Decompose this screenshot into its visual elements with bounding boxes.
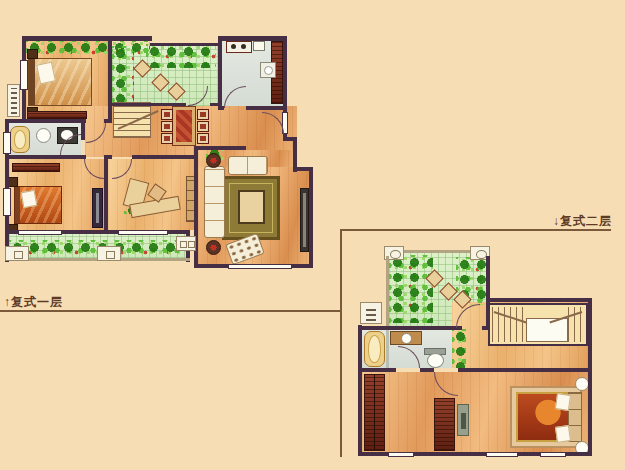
- post-detail: [188, 241, 195, 248]
- table-runner: [176, 110, 192, 142]
- wall: [108, 36, 112, 123]
- wall: [5, 155, 86, 159]
- ac-vent-icon: [11, 88, 17, 114]
- side-table: [206, 153, 221, 168]
- dining-chair: [197, 109, 209, 120]
- wall: [81, 123, 85, 140]
- wall: [458, 368, 588, 372]
- plants-terrace-left: [389, 255, 433, 323]
- wall: [246, 106, 287, 110]
- bathtub: [364, 331, 385, 367]
- terrace-rail: [386, 256, 389, 328]
- post-detail: [106, 251, 115, 259]
- burner: [241, 44, 246, 49]
- headboard: [29, 59, 35, 105]
- pillow: [36, 62, 56, 85]
- plan-first-floor-label: ↑复式一层: [4, 294, 63, 311]
- wall: [486, 256, 490, 330]
- bathtub-basin: [368, 335, 381, 363]
- post-detail: [180, 241, 187, 248]
- stair-landing: [526, 318, 568, 342]
- wall: [309, 167, 313, 268]
- window: [20, 60, 28, 90]
- ac-vent-icon: [366, 306, 376, 321]
- kitchen-appliance: [253, 41, 265, 51]
- wall: [194, 146, 246, 150]
- dining-chair: [161, 121, 173, 132]
- window: [3, 188, 11, 216]
- wall: [150, 43, 220, 46]
- dining-chair: [161, 109, 173, 120]
- wall: [218, 36, 222, 110]
- vanity-counter: [390, 331, 422, 345]
- pillow: [555, 393, 571, 411]
- stairwell: [488, 303, 588, 346]
- sofa-three-seat: [204, 166, 225, 238]
- bedside-lamp: [575, 377, 589, 391]
- flower-box: [176, 236, 196, 251]
- vertical-divider: [340, 229, 342, 457]
- wall: [108, 103, 186, 106]
- terrace-rail: [404, 250, 470, 253]
- plants-hall-strip: [452, 329, 466, 368]
- dresser-upper: [27, 111, 87, 119]
- dresser-lower: [12, 163, 60, 172]
- tv-screen: [303, 193, 306, 247]
- dressing-desk: [457, 404, 469, 436]
- window: [18, 230, 62, 235]
- wardrobe-mid: [434, 398, 455, 451]
- wall: [218, 36, 287, 41]
- wall: [358, 368, 396, 372]
- ac-platform: [7, 84, 20, 117]
- dining-chair: [161, 133, 173, 144]
- coffee-table: [238, 190, 265, 224]
- staircase: [113, 102, 151, 138]
- kitchen-sink: [260, 62, 276, 78]
- stove: [226, 41, 252, 53]
- nightstand: [27, 49, 38, 59]
- window: [388, 452, 414, 457]
- pillow: [21, 190, 38, 208]
- window: [540, 452, 566, 457]
- wall: [486, 298, 592, 302]
- bed-upper: [28, 58, 92, 106]
- wall: [283, 36, 287, 110]
- wall: [5, 119, 86, 123]
- tv-cabinet: [300, 188, 309, 252]
- window: [228, 264, 292, 269]
- post-detail: [14, 251, 23, 259]
- ac-platform: [360, 302, 382, 324]
- wash-basin: [401, 333, 412, 344]
- wall: [22, 36, 152, 41]
- headboard: [15, 187, 20, 223]
- bathtub: [10, 126, 30, 153]
- wardrobe-lower: [92, 188, 103, 228]
- bed-lower: [14, 186, 62, 224]
- balcony-post: [97, 246, 121, 261]
- plants-garden-top: [146, 44, 216, 68]
- nightstand: [8, 177, 18, 187]
- window: [3, 132, 11, 154]
- desk-inset: [461, 413, 466, 429]
- dining-table: [172, 106, 196, 146]
- balcony-post: [5, 246, 29, 261]
- wall: [482, 326, 490, 330]
- wall: [104, 159, 108, 232]
- wall: [358, 325, 362, 456]
- window: [118, 230, 168, 235]
- floorplan-canvas: ↑复式一层: [0, 0, 625, 470]
- wall: [420, 368, 434, 372]
- wall: [358, 326, 462, 330]
- wash-basin: [36, 128, 51, 143]
- wall: [210, 103, 218, 106]
- wardrobe-front: [96, 193, 99, 223]
- burner: [231, 44, 236, 49]
- window: [486, 452, 518, 457]
- pillar-ring: [390, 250, 401, 259]
- pillow: [555, 425, 571, 443]
- dining-chair: [197, 133, 209, 144]
- side-table: [206, 240, 221, 255]
- plants-garden-left: [112, 46, 134, 104]
- plan-second-floor-label: ↓复式二层: [548, 213, 612, 230]
- sofa-loveseat: [228, 156, 268, 175]
- bath-divider: [386, 330, 389, 368]
- toilet-bowl: [427, 353, 444, 368]
- wardrobe-divider: [374, 375, 375, 450]
- bathtub-basin: [14, 130, 26, 149]
- dining-chair: [197, 121, 209, 132]
- wall: [588, 298, 592, 456]
- wall: [132, 155, 198, 159]
- wardrobe-left: [364, 374, 385, 451]
- sink-bowl: [264, 66, 273, 75]
- label-underline-first: [0, 310, 341, 312]
